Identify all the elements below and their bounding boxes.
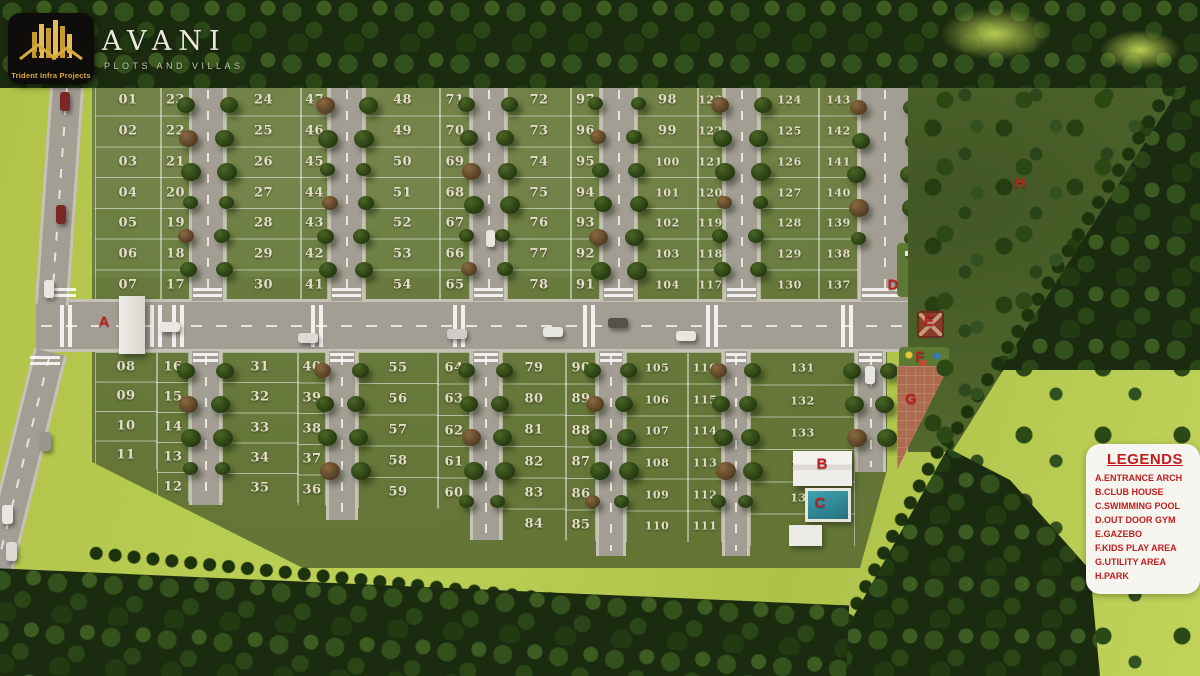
- legend-item: E.GAZEBO: [1095, 528, 1195, 542]
- marker-layer: ABCDEFGH: [0, 0, 1200, 676]
- marker-f: F: [915, 349, 924, 366]
- company-logo: Trident Infra Projects: [8, 13, 94, 84]
- buildings-icon: [18, 18, 84, 62]
- project-title: AVANI: [102, 26, 227, 57]
- legend-panel: LEGENDS A.ENTRANCE ARCHB.CLUB HOUSEC.SWI…: [1086, 444, 1200, 594]
- marker-g: G: [905, 391, 917, 408]
- legend-item: D.OUT DOOR GYM: [1095, 514, 1195, 528]
- marker-a: A: [99, 314, 110, 331]
- legend-item: G.UTILITY AREA: [1095, 556, 1195, 570]
- logo-text: Trident Infra Projects: [8, 71, 94, 80]
- marker-c: C: [815, 495, 826, 512]
- marker-e: E: [924, 313, 934, 330]
- legend-item: B.CLUB HOUSE: [1095, 486, 1195, 500]
- project-subtitle: PLOTS AND VILLAS: [104, 61, 244, 71]
- legend-item: C.SWIMMING POOL: [1095, 500, 1195, 514]
- legend-item: A.ENTRANCE ARCH: [1095, 472, 1195, 486]
- marker-h: H: [1015, 175, 1026, 192]
- legend-item: H.PARK: [1095, 570, 1195, 584]
- marker-b: B: [817, 456, 828, 473]
- legend-list: A.ENTRANCE ARCHB.CLUB HOUSEC.SWIMMING PO…: [1095, 472, 1195, 584]
- legend-title: LEGENDS: [1095, 451, 1195, 468]
- site-plan-scene: 0102030405060723222120191817242526272829…: [0, 0, 1200, 676]
- legend-item: F.KIDS PLAY AREA: [1095, 542, 1195, 556]
- marker-d: D: [888, 277, 899, 294]
